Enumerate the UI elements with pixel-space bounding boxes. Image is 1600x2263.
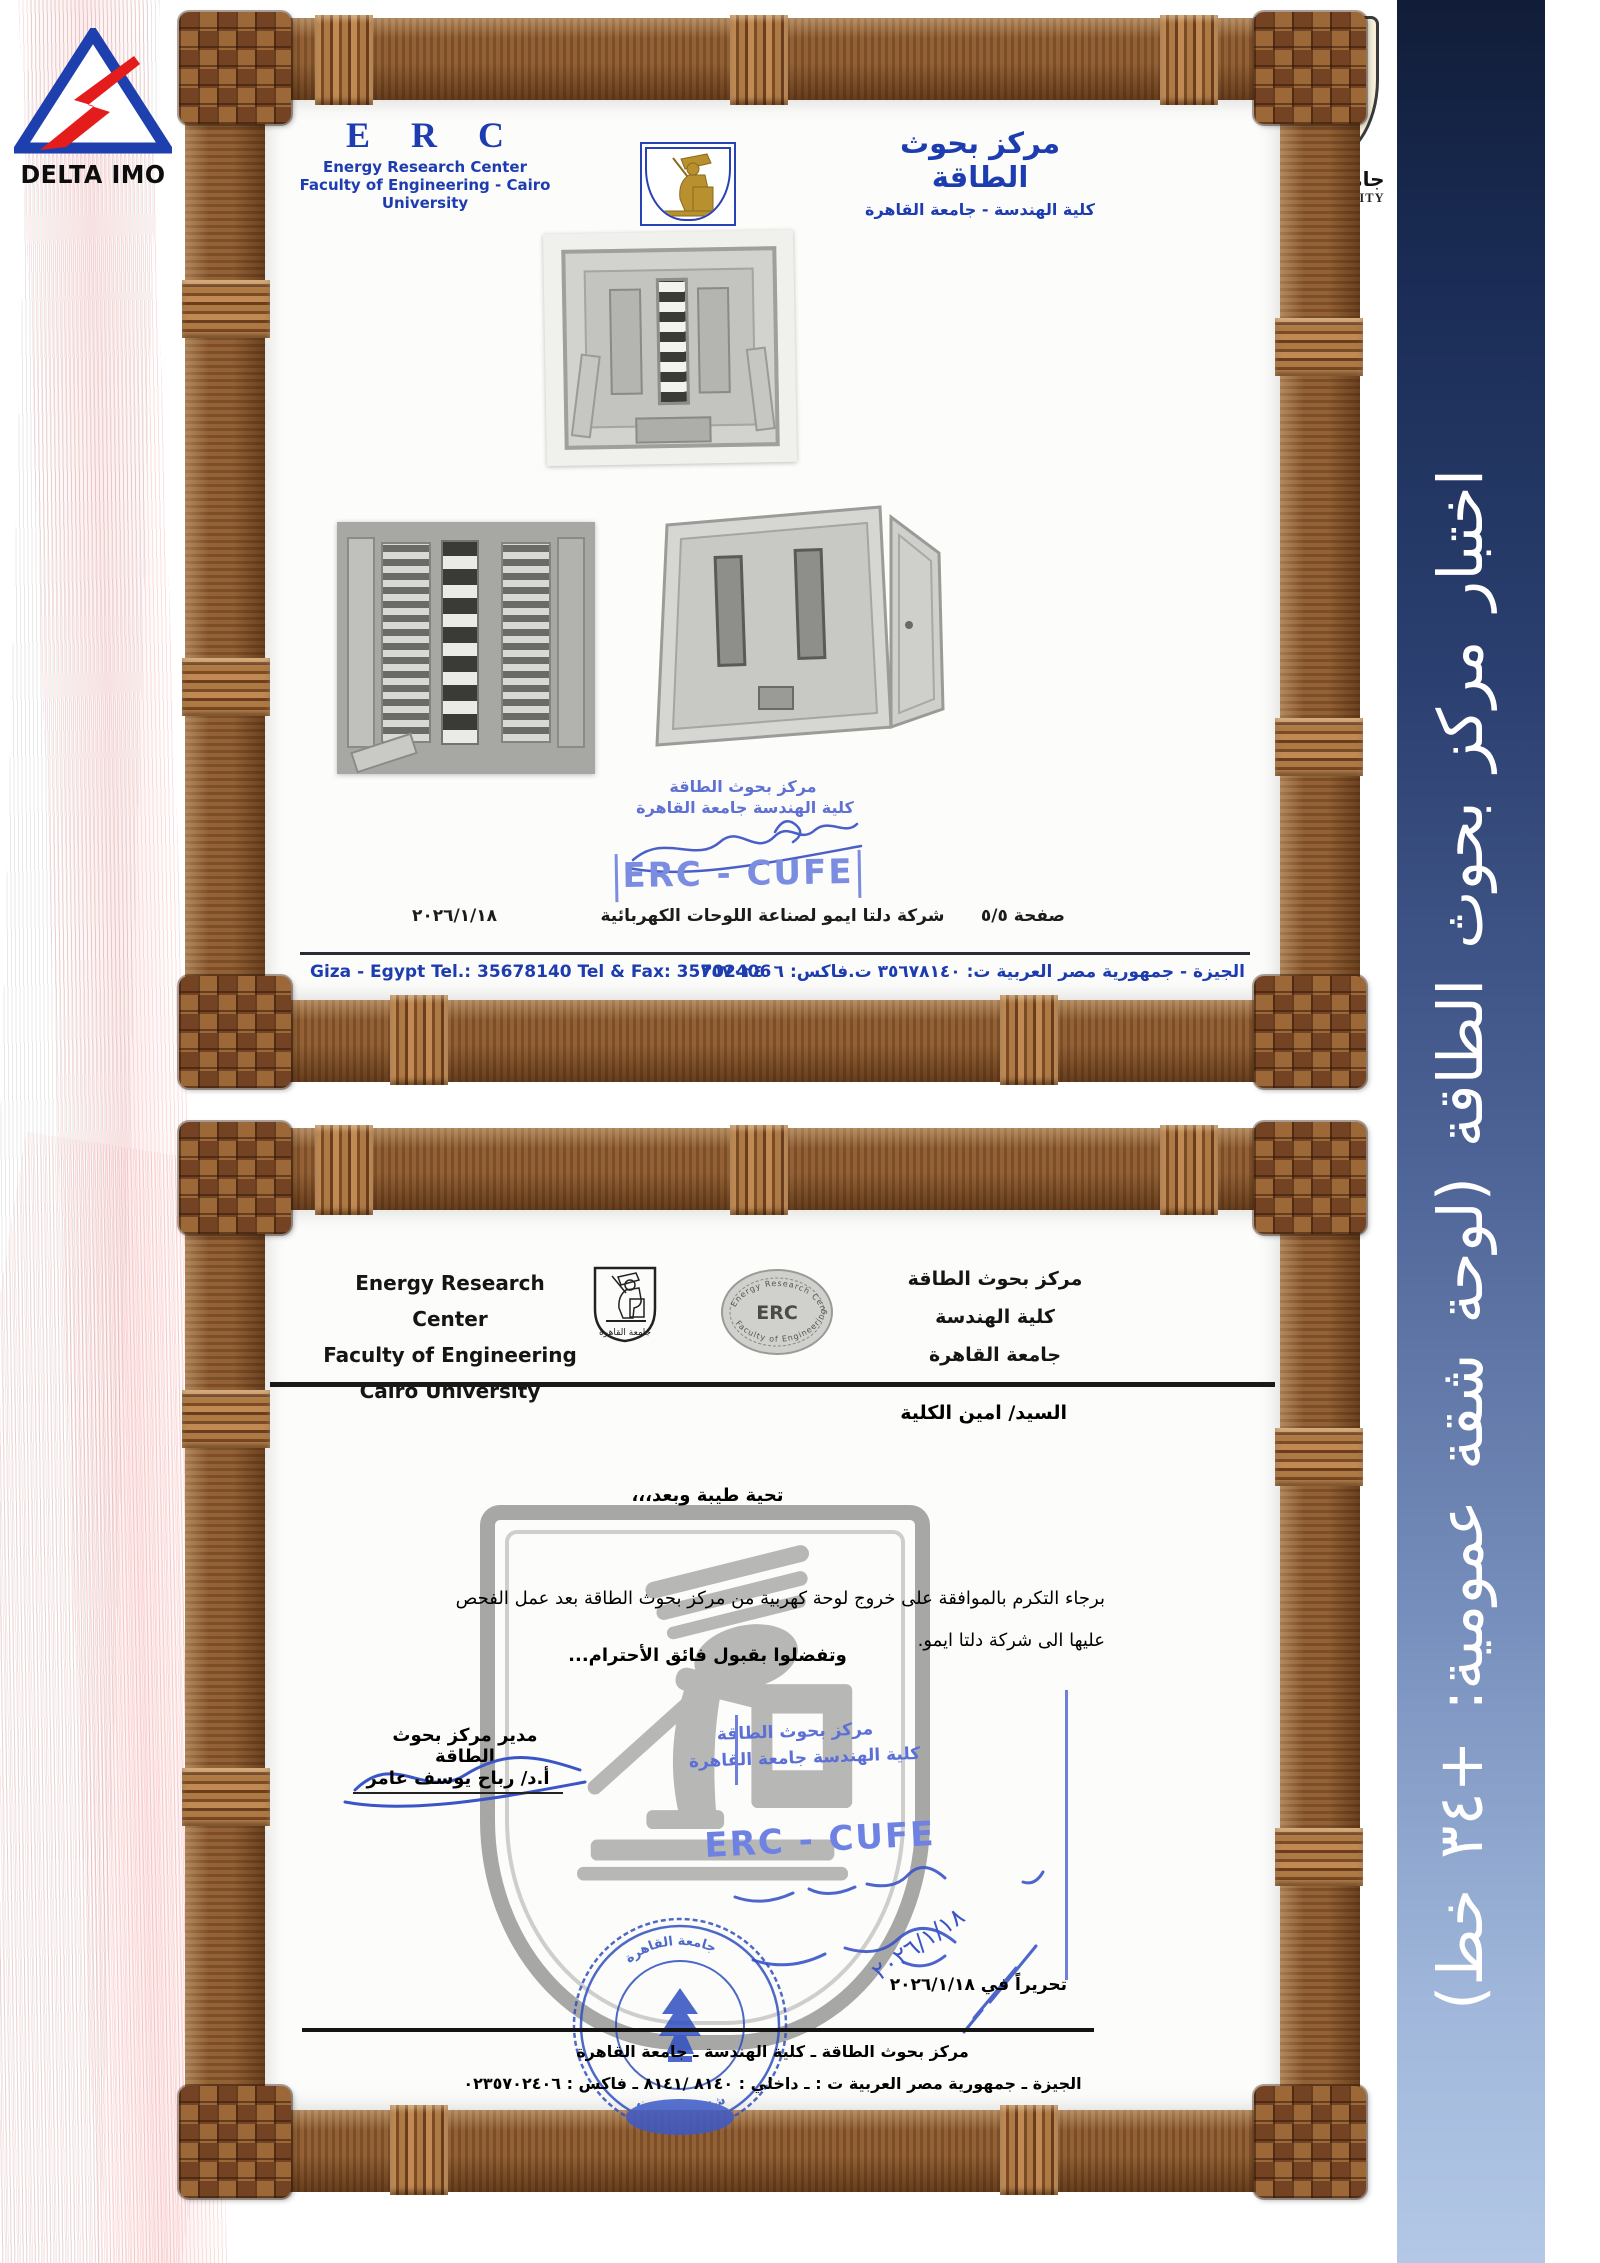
cairo-university-line-emblem-icon: جامعة القاهرة [590, 1265, 660, 1349]
certificate2-page: Energy Research Center Faculty of Engine… [265, 1210, 1280, 2110]
cert1-center-name-ar: مركز بحوث الطاقة [865, 126, 1095, 194]
woven-corner [179, 12, 291, 124]
rattan-wrap [315, 1125, 373, 1215]
cert2-ar-line1: مركز بحوث الطاقة [895, 1260, 1095, 1298]
cert2-stamp-left-bar [735, 1715, 738, 1785]
rattan-wrap [315, 15, 373, 105]
erc-scribe-emblem-icon [640, 142, 736, 226]
certificate1-page: E R C Energy Research Center Faculty of … [265, 100, 1280, 1000]
cert1-header-english: E R C Energy Research Center Faculty of … [290, 114, 560, 212]
cert1-stamp-line1: مركز بحوث الطاقة [653, 777, 833, 796]
delta-imo-logo: DELTA IMO [14, 28, 172, 189]
woven-corner [1254, 12, 1366, 124]
rattan-wrap [1160, 15, 1218, 105]
woven-corner [1254, 976, 1366, 1088]
panel-photo-busbar-detail [337, 522, 595, 774]
cert1-erc-acronym: E R C [290, 114, 560, 156]
rattan-wrap [1160, 1125, 1218, 1215]
panel-photo-open-box [543, 230, 797, 466]
cert2-closing: وتفضلوا بقبول فائق الأحترام... [265, 1645, 1150, 1666]
frame1-right-bar [1280, 18, 1360, 1082]
rattan-wrap [1000, 2105, 1058, 2195]
rattan-wrap [390, 2105, 448, 2195]
seal-center-text: ERC [756, 1302, 798, 1324]
cert1-company-line: شركة دلتا ايمو لصناعة اللوحات الكهربائية [265, 906, 1280, 926]
cert1-page-label: صفحة ٥/٥ [965, 906, 1065, 926]
frame2-right-bar [1280, 1128, 1360, 2192]
cert2-footer-rule [302, 2028, 1094, 2032]
cert2-ar-line3: جامعة القاهرة [895, 1336, 1095, 1374]
cert2-body-line1: برجاء التكرم بالموافقة على خروج لوحة كهر… [345, 1588, 1105, 1609]
frame1-bottom-bar [185, 1000, 1360, 1082]
cert2-shield-caption: جامعة القاهرة [599, 1328, 651, 1338]
cert2-signer-name: أ.د/ رباح يوسف عامر [353, 1768, 563, 1794]
frame1-left-bar [185, 18, 265, 1082]
cert2-en-line2: Faculty of Engineering [320, 1337, 580, 1373]
cert2-footer-line1: مركز بحوث الطاقة ـ كلية الهندسة ـ جامعة … [265, 2042, 1280, 2061]
vertical-banner: اختبار مركز بحوث الطاقة (لوحة شقة عمومية… [1397, 0, 1545, 2263]
rattan-wrap [1275, 1428, 1363, 1486]
cert2-header-rule [270, 1382, 1275, 1387]
cert1-faculty-line-en: Faculty of Engineering - Cairo Universit… [290, 176, 560, 212]
woven-corner [179, 2086, 291, 2198]
rattan-wrap [1000, 995, 1058, 1085]
cert2-header-arabic: مركز بحوث الطاقة كلية الهندسة جامعة القا… [895, 1260, 1095, 1374]
woven-corner [1254, 2086, 1366, 2198]
woven-corner [1254, 1122, 1366, 1234]
cert1-header-arabic: مركز بحوث الطاقة كلية الهندسة - جامعة ال… [865, 126, 1095, 219]
panel-photo-door-open [647, 495, 947, 767]
cert2-issue-date: تحريراً في ٢٠٢٦/١/١٨ [890, 1975, 1067, 1995]
delta-imo-label: DELTA IMO [18, 160, 168, 189]
cert1-center-name-en: Energy Research Center [290, 158, 560, 176]
woven-corner [179, 976, 291, 1088]
cert1-contact-arabic: الجيزة - جمهورية مصر العربية ت: ٣٥٦٧٨١٤٠… [701, 962, 1245, 982]
rattan-wrap [730, 15, 788, 105]
cert1-erc-cufe-stamp: ERC - CUFE [615, 850, 862, 902]
cert2-header-english: Energy Research Center Faculty of Engine… [320, 1265, 580, 1409]
cert2-greeting: تحية طيبة وبعد،،، [265, 1485, 1150, 1506]
rattan-wrap [1275, 718, 1363, 776]
rattan-wrap [730, 1125, 788, 1215]
cert2-en-line3: Cairo University [320, 1373, 580, 1409]
rattan-wrap [182, 658, 270, 716]
rattan-wrap [1275, 1828, 1363, 1886]
cert2-stamp-right-bar [1065, 1690, 1068, 1980]
rattan-wrap [390, 995, 448, 1085]
cert2-recipient: السيد/ امين الكلية [900, 1402, 1067, 1424]
framed-certificate-2: Energy Research Center Faculty of Engine… [185, 1128, 1360, 2192]
cert2-ar-line2: كلية الهندسة [895, 1298, 1095, 1336]
cert2-footer-line2: الجيزة ـ جمهورية مصر العربية ت : ـ داخلي… [265, 2074, 1280, 2093]
banner-vertical-text: اختبار مركز بحوث الطاقة (لوحة شقة عمومية… [1424, 469, 1497, 2010]
rattan-wrap [182, 280, 270, 338]
cert1-divider [300, 952, 1250, 955]
page: اختبار مركز بحوث الطاقة (لوحة شقة عمومية… [0, 0, 1600, 2263]
rattan-wrap [1275, 318, 1363, 376]
woven-corner [179, 1122, 291, 1234]
frame2-left-bar [185, 1128, 265, 2192]
delta-triangle-bolt-icon [14, 28, 172, 154]
framed-certificate-1: E R C Energy Research Center Faculty of … [185, 18, 1360, 1082]
rattan-wrap [182, 1768, 270, 1826]
rattan-wrap [182, 1390, 270, 1448]
cert1-faculty-line-ar: كلية الهندسة - جامعة القاهرة [865, 200, 1095, 219]
round-official-stamp: جامعة القاهرة شئون العاملين [565, 1910, 795, 2140]
erc-oval-seal: Energy Research Center Faculty of Engine… [720, 1268, 835, 1356]
cert2-en-line1: Energy Research Center [320, 1265, 580, 1337]
